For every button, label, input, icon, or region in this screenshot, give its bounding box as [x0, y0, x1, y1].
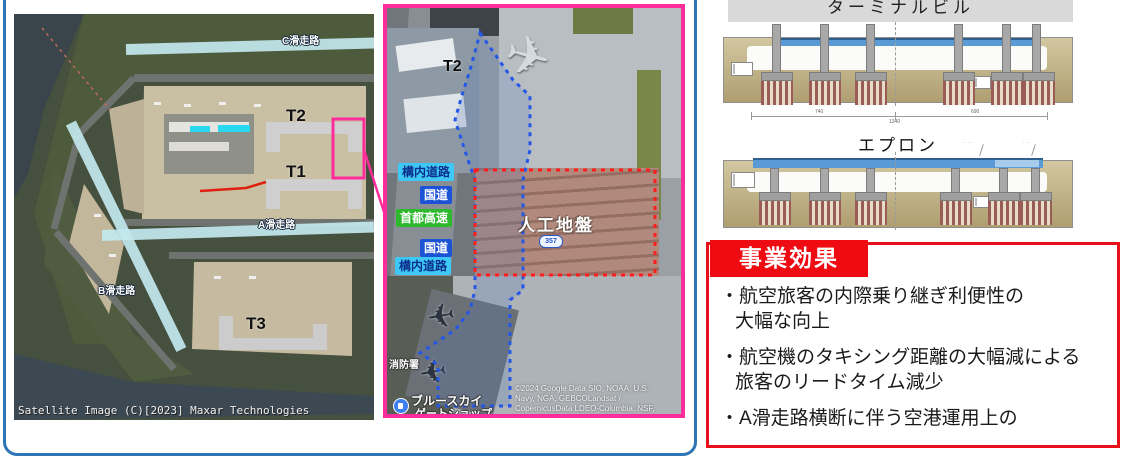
- effect-bullet-1-line2: 大幅な向上: [720, 309, 1106, 334]
- google-attribution-line1: ©2024 Google Data SIO, NOAA, U.S.: [515, 384, 655, 394]
- detail-satellite-panel: ✈ ✈ ✈ T2 構内道路 国道 首都高速 国道 構内道路 人工地盤 357 消…: [383, 4, 685, 418]
- terminal-cross-section: [723, 22, 1073, 106]
- dimension-row: 740 1340 690: [723, 108, 1073, 130]
- artificial-ground-label: 人工地盤: [518, 211, 594, 236]
- terminal-1-label: T1: [286, 162, 306, 182]
- road-label-expressway: 首都高速: [396, 209, 452, 227]
- terminal-3-label: T3: [246, 314, 266, 334]
- effect-bullet-3: ・A滑走路横断に伴う空港運用上の: [720, 406, 1106, 431]
- shop-icon: [393, 398, 409, 414]
- road-label-national-1: 国道: [420, 186, 452, 204]
- effect-bullet-2-line2: 旅客のリードタイム減少: [720, 370, 1106, 395]
- route-357-shield: 357: [539, 235, 563, 248]
- effect-bullet-2-line1: ・航空機のタキシング距離の大幅減による: [720, 345, 1106, 370]
- effect-bullet-2: ・航空機のタキシング距離の大幅減による 旅客のリードタイム減少: [720, 345, 1106, 395]
- overview-satellite-map: C滑走路 A滑走路 B滑走路 T2 T1 T3 Satellite Image …: [14, 14, 374, 420]
- road-label-campus-1: 構内道路: [398, 163, 454, 181]
- effect-bullet-1-line1: ・航空旅客の内際乗り継ぎ利便性の: [720, 284, 1106, 309]
- apron-cross-section: ····· ···: [723, 152, 1073, 230]
- google-attribution-line2: Navy, NGA, GEBCOLandsat /: [515, 394, 655, 404]
- road-label-national-2: 国道: [420, 239, 452, 257]
- overview-map-art: [14, 14, 374, 420]
- terminal-2-label: T2: [286, 106, 306, 126]
- google-attribution-line3: CopernicusData LDEO-Columbia, NSF,: [515, 404, 655, 414]
- effect-bullet-3-line1: ・A滑走路横断に伴う空港運用上の: [720, 406, 1106, 431]
- runway-c-label: C滑走路: [282, 32, 319, 47]
- google-attribution: ©2024 Google Data SIO, NOAA, U.S. Navy, …: [515, 384, 655, 414]
- dimension-right: 690: [971, 109, 979, 115]
- runway-a-label: A滑走路: [258, 216, 295, 231]
- runway-b-label: B滑走路: [98, 282, 135, 297]
- dimension-center: 1340: [889, 119, 900, 125]
- shop-name-line2: ゲートショップ: [415, 405, 492, 418]
- slide-canvas: { "left_map": { "runway_c": "C滑走路", "run…: [0, 0, 1122, 420]
- detail-terminal-2-label: T2: [443, 58, 462, 76]
- maxar-attribution: Satellite Image (C)[2023] Maxar Technolo…: [18, 404, 309, 417]
- project-effects-list: ・航空旅客の内際乗り継ぎ利便性の 大幅な向上 ・航空機のタキシング距離の大幅減に…: [720, 284, 1106, 442]
- dimension-left: 740: [815, 109, 823, 115]
- project-effects-title: 事業効果: [710, 240, 868, 277]
- road-label-campus-2: 構内道路: [395, 257, 451, 275]
- terminal-building-caption: ターミナルビル: [728, 0, 1073, 22]
- fire-station-label: 消防署: [389, 356, 419, 371]
- effect-bullet-1: ・航空旅客の内際乗り継ぎ利便性の 大幅な向上: [720, 284, 1106, 334]
